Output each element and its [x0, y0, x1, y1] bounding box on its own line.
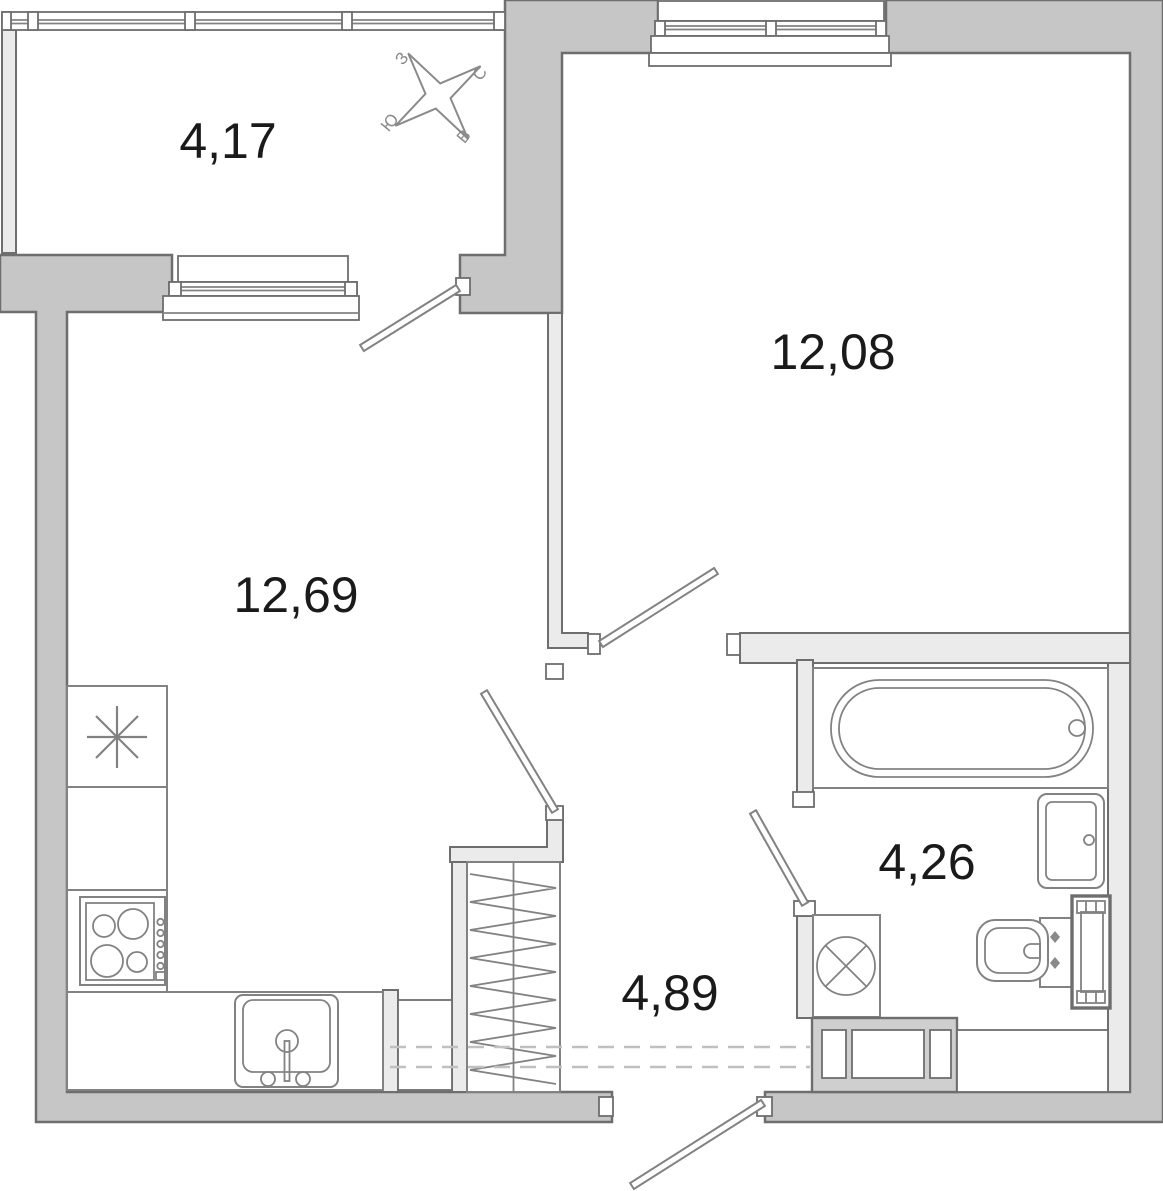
living-bedroom-partition	[548, 313, 588, 648]
bathtub	[813, 668, 1108, 788]
kitchen-sink	[235, 995, 338, 1087]
corridor-door-leaf	[481, 690, 558, 813]
compass-rose: З С Ю В	[366, 24, 511, 169]
stove	[80, 897, 165, 985]
bedroom-door-leaf	[599, 568, 718, 647]
window-sill	[178, 256, 348, 282]
wall-balcony-bedroom-divider	[460, 0, 658, 313]
bathroom-left-wall-lower	[797, 916, 813, 1018]
glazing-post	[342, 12, 352, 30]
kitchen-units	[67, 686, 383, 1090]
window-sill-ledge	[649, 53, 891, 66]
kitchen-end-partition	[383, 990, 398, 1092]
compass-west: З	[391, 48, 412, 68]
washbasin	[1038, 794, 1104, 888]
glazing-post	[2, 12, 11, 30]
compass-south: Ю	[377, 110, 403, 135]
balcony-area-label: 4,17	[179, 113, 276, 169]
window-post	[345, 282, 357, 296]
window-post	[169, 282, 181, 296]
bathroom-left-wall-upper	[797, 660, 813, 794]
bedroom-window	[649, 1, 891, 66]
wardrobe	[467, 862, 560, 1092]
window-sill	[658, 1, 884, 21]
hallway-area-label: 4,89	[621, 965, 718, 1021]
entrance-door-jamb-left	[599, 1097, 613, 1116]
bathroom-area-label: 4,26	[878, 834, 975, 890]
glazing-post	[185, 12, 195, 30]
window-sill-ledge	[163, 296, 359, 320]
window-frame	[169, 282, 357, 296]
compass-east: В	[453, 126, 475, 147]
compass-north: С	[469, 63, 491, 85]
washing-machine	[813, 915, 880, 1017]
bedroom-area-label: 12,08	[770, 324, 895, 380]
window-post	[876, 21, 886, 36]
balcony-living-window	[163, 256, 359, 320]
glazing-post	[494, 12, 505, 30]
glazing-post	[28, 12, 38, 30]
ventilation-shaft	[1072, 896, 1110, 1008]
bathroom-door-leaf	[750, 810, 808, 905]
kitchen-cabinet	[67, 787, 167, 890]
shaft-strip-wall	[1108, 663, 1130, 1092]
toilet	[977, 918, 1072, 987]
balcony-glazing	[2, 12, 505, 30]
bedroom-door-jamb-right	[727, 634, 740, 655]
window-sill-inner	[651, 36, 889, 53]
balcony-door-leaf	[360, 285, 460, 351]
wardrobe-left-wall	[452, 862, 467, 1092]
window-post	[766, 21, 776, 36]
inner-walls	[2, 30, 1130, 1092]
hall-cabinet	[812, 1018, 957, 1092]
bedroom-door-jamb-left	[588, 634, 600, 654]
balcony-side-wall	[2, 30, 16, 253]
bathroom-top-wall	[740, 633, 1130, 663]
floor-plan: З С Ю В 4,17 12,08 12,69 4,26 4,89	[0, 0, 1163, 1191]
hall-niche	[398, 1000, 452, 1090]
room-labels: 4,17 12,08 12,69 4,26 4,89	[179, 113, 975, 1021]
hall-counter	[957, 1030, 1108, 1092]
bathroom-door-jamb-top	[793, 792, 814, 807]
partition-end-cap	[546, 664, 563, 679]
window-post	[655, 21, 665, 36]
living-kitchen-area-label: 12,69	[233, 567, 358, 623]
entrance-door-leaf	[630, 1100, 765, 1189]
compass-star	[366, 24, 511, 169]
